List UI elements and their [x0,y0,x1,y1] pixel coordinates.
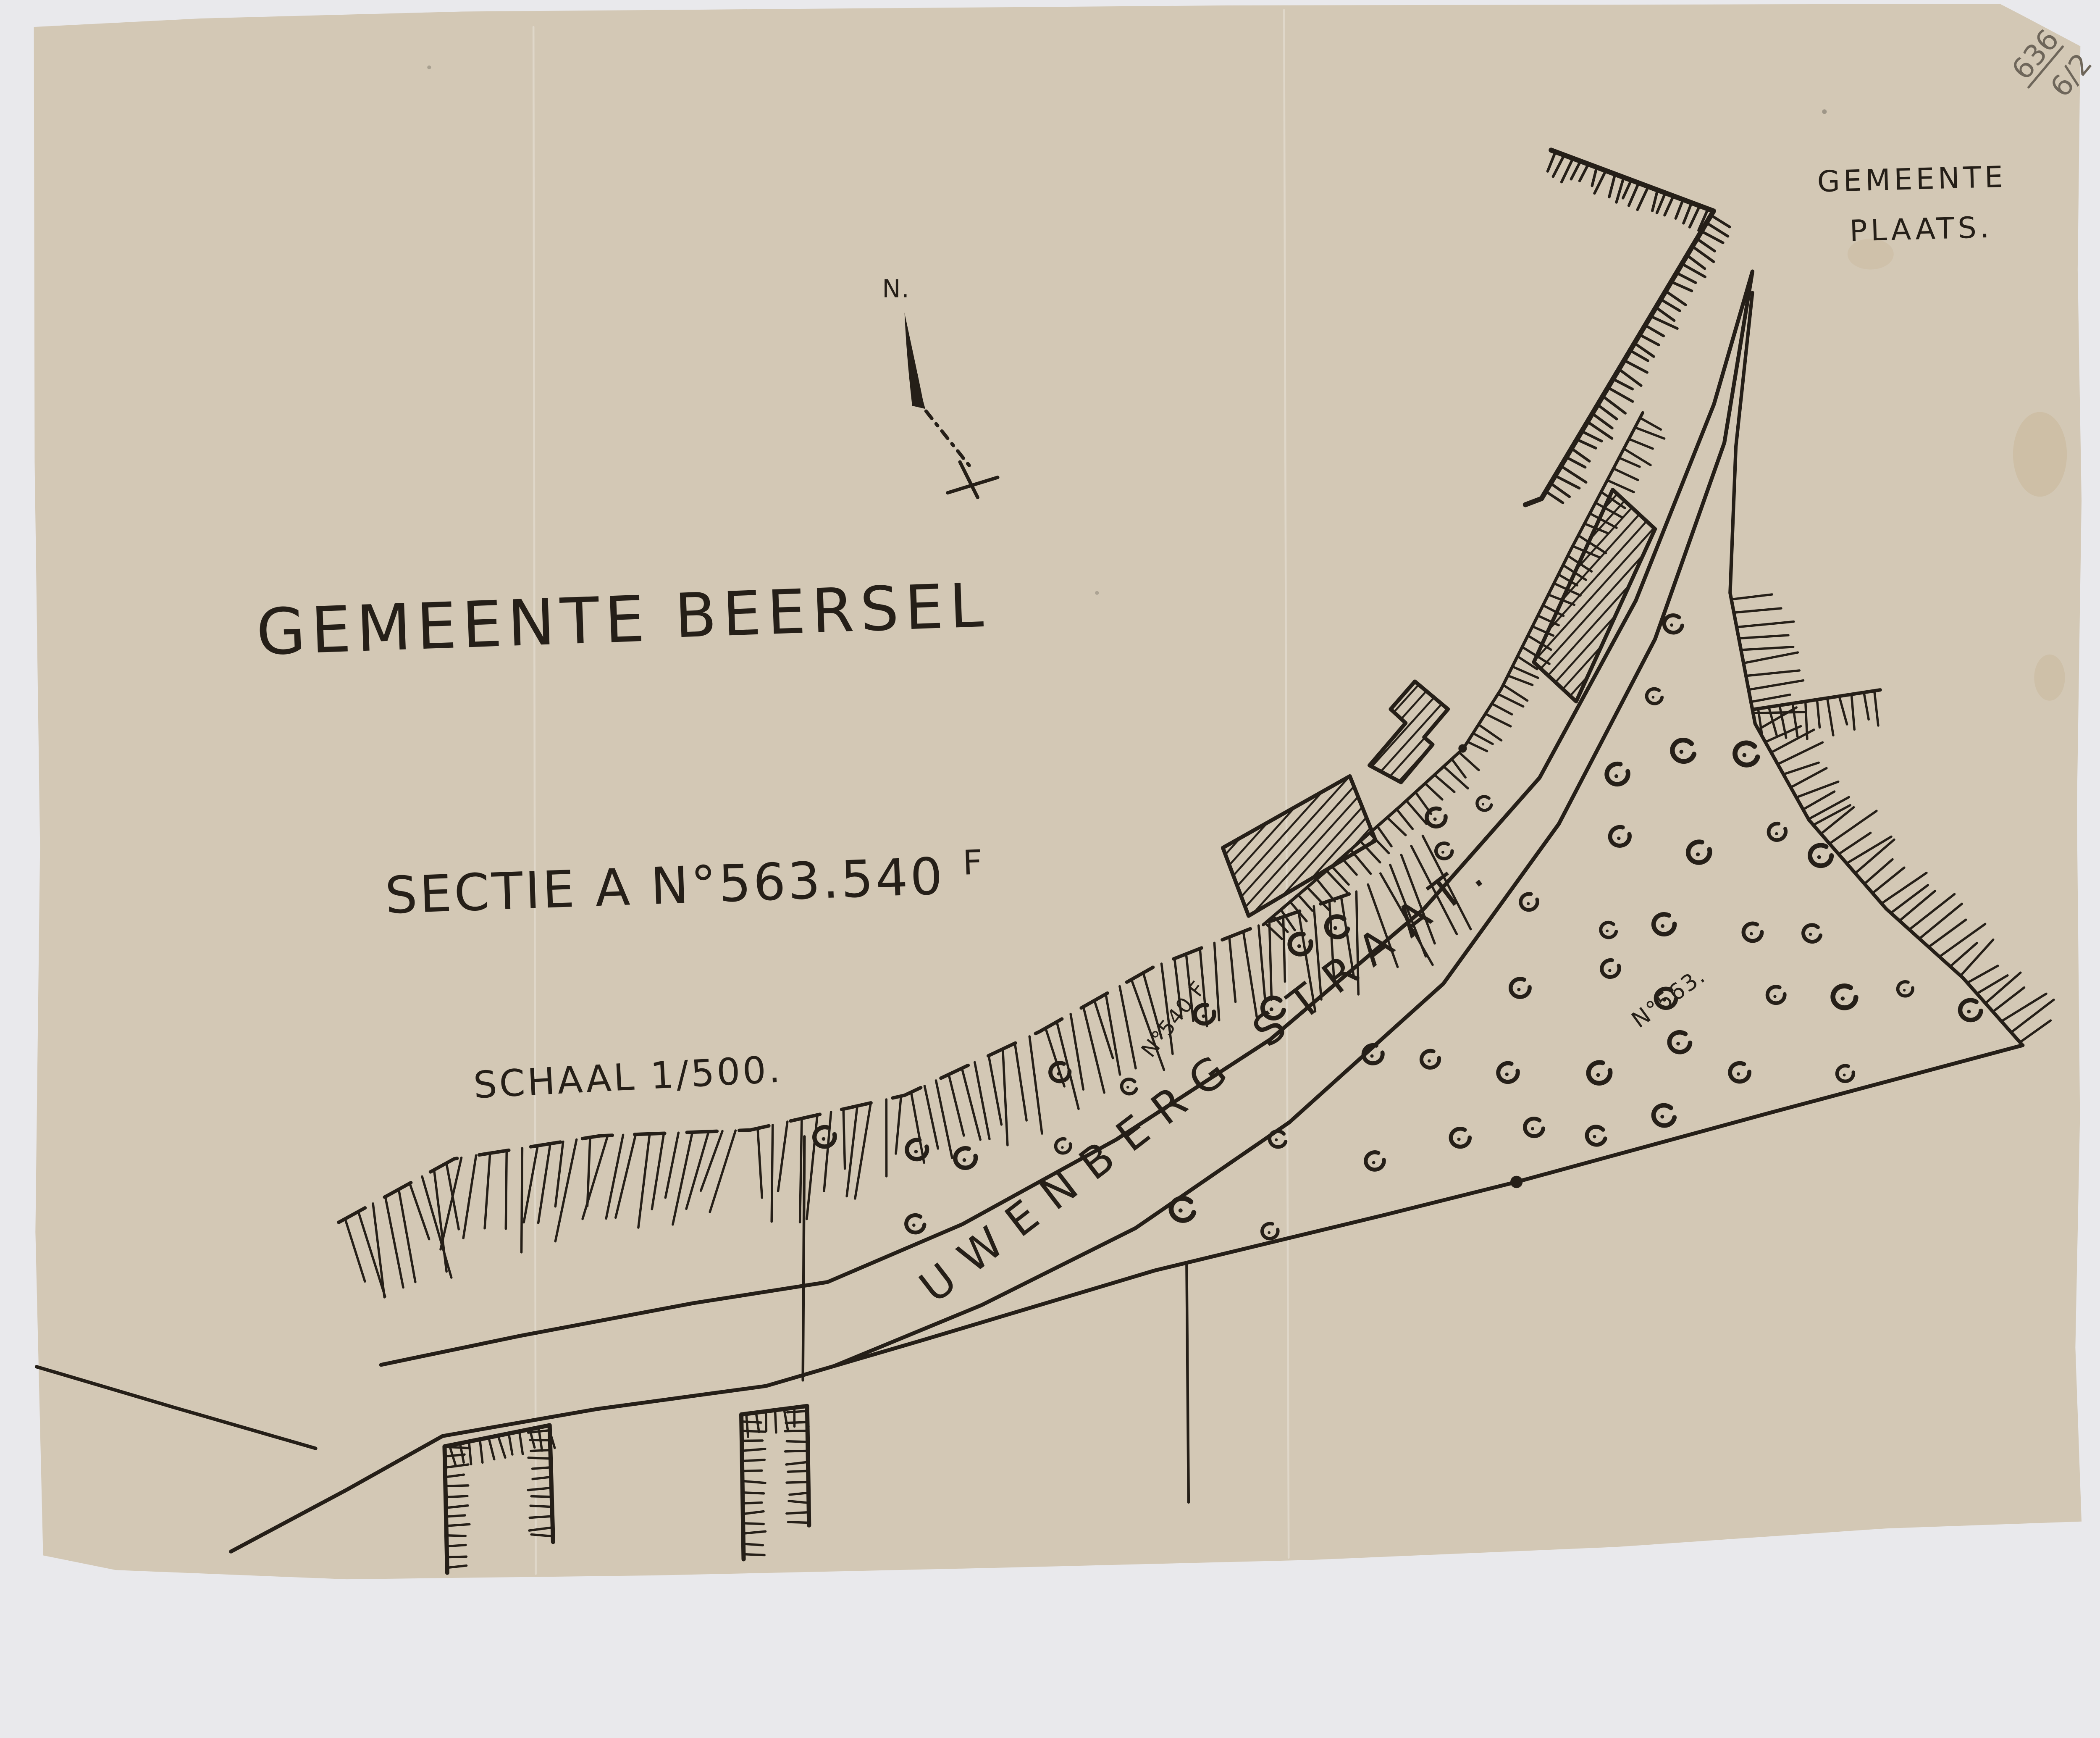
title-name: BEERSEL [674,571,991,652]
boundary-dot-road [1458,744,1467,752]
map-canvas: N. GEMEENTE BEERSEL SECTIE A N°563.540 F… [0,0,2100,1593]
plot-boundary-middle [1186,1263,1189,1502]
section-superscript: F [962,843,985,883]
region-label-line1: GEMEENTE [1817,160,2007,199]
plot-boundary-west [803,1136,805,1380]
title-municipality: GEMEENTE [255,582,651,670]
paper-sheet [34,4,2082,1579]
north-label: N. [882,274,910,303]
scanned-map-sheet: N. GEMEENTE BEERSEL SECTIE A N°563.540 F… [0,0,2100,1593]
region-label-line2: PLAATS. [1849,210,1993,248]
boundary-dot-south [1510,1176,1522,1188]
